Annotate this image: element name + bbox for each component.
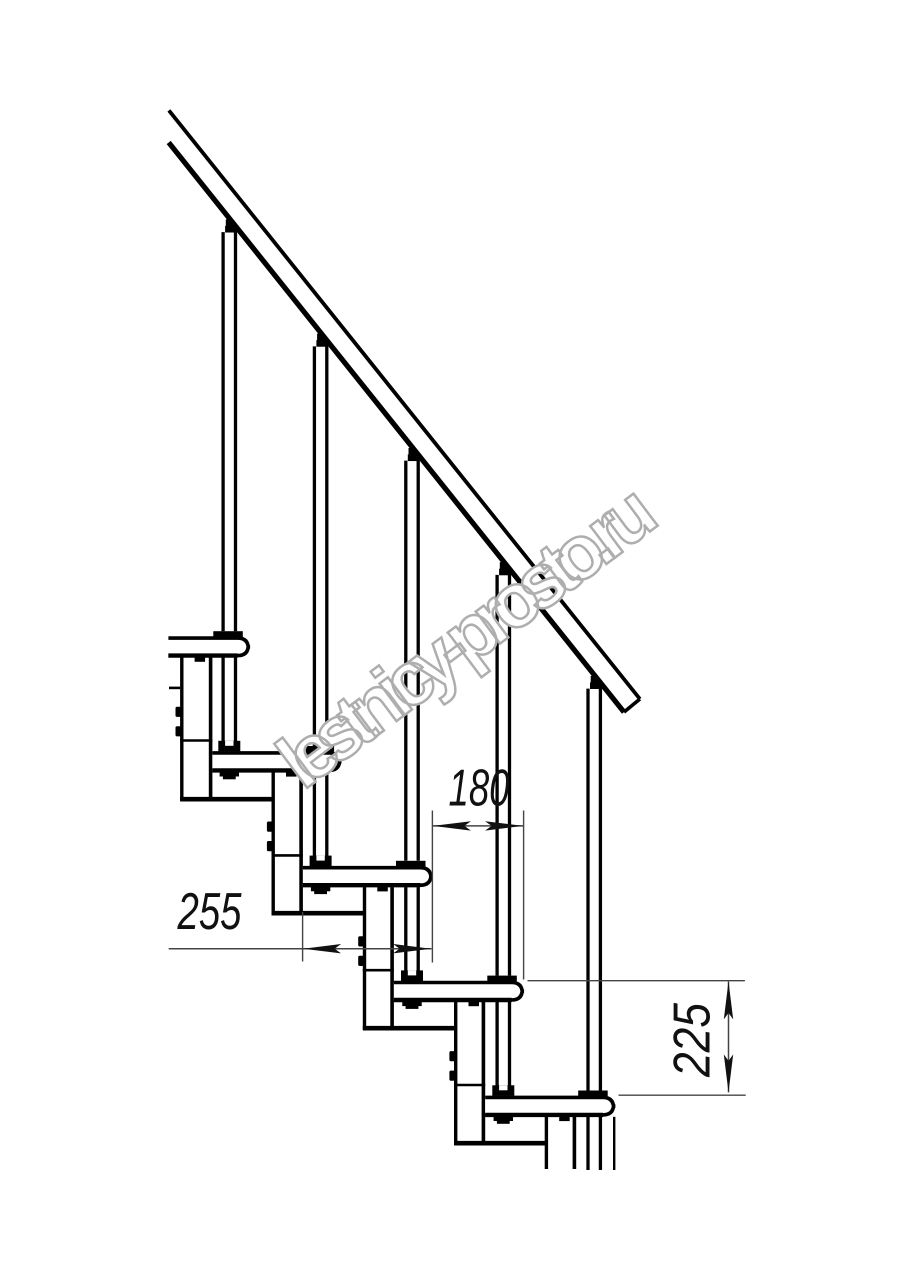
- svg-text:255: 255: [177, 883, 243, 941]
- svg-text:180: 180: [449, 760, 510, 818]
- svg-text:225: 225: [664, 1002, 722, 1078]
